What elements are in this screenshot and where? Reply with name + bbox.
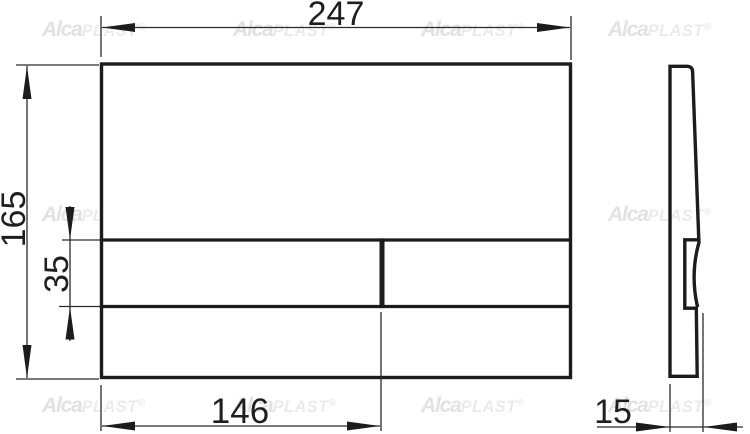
dimension-label-thickness: 15 [594, 393, 632, 431]
dimension-label-width: 247 [308, 0, 365, 33]
arrowhead-right [537, 23, 570, 32]
dimension-label-height: 165 [0, 191, 33, 248]
arrowhead-up [66, 307, 75, 340]
arrowhead-right [347, 422, 380, 431]
side-view-button-groove [694, 243, 699, 306]
dimension-label-button-width: 146 [211, 392, 269, 431]
arrowhead-top [23, 66, 32, 99]
arrowhead-bottom [23, 345, 32, 378]
watermark: AlcaPLAST® [607, 18, 712, 41]
technical-drawing-canvas: AlcaPLAST® AlcaPLAST® AlcaPLAST® AlcaPLA… [0, 0, 750, 434]
watermark: AlcaPLAST® [420, 394, 525, 417]
front-view-plate-outline [102, 64, 571, 378]
watermark: AlcaPLAST® [41, 394, 146, 417]
arrowhead-inward-left [704, 423, 738, 432]
arrowhead-left [102, 422, 135, 431]
arrowhead-inward-right [636, 423, 670, 432]
watermark: AlcaPLAST® [420, 18, 525, 41]
flush-plate-dimension-drawing: AlcaPLAST® AlcaPLAST® AlcaPLAST® AlcaPLA… [0, 0, 750, 434]
dimension-label-panel-height: 35 [38, 255, 76, 293]
dimension-panel-height: 35 [38, 206, 100, 341]
front-view [102, 64, 571, 378]
